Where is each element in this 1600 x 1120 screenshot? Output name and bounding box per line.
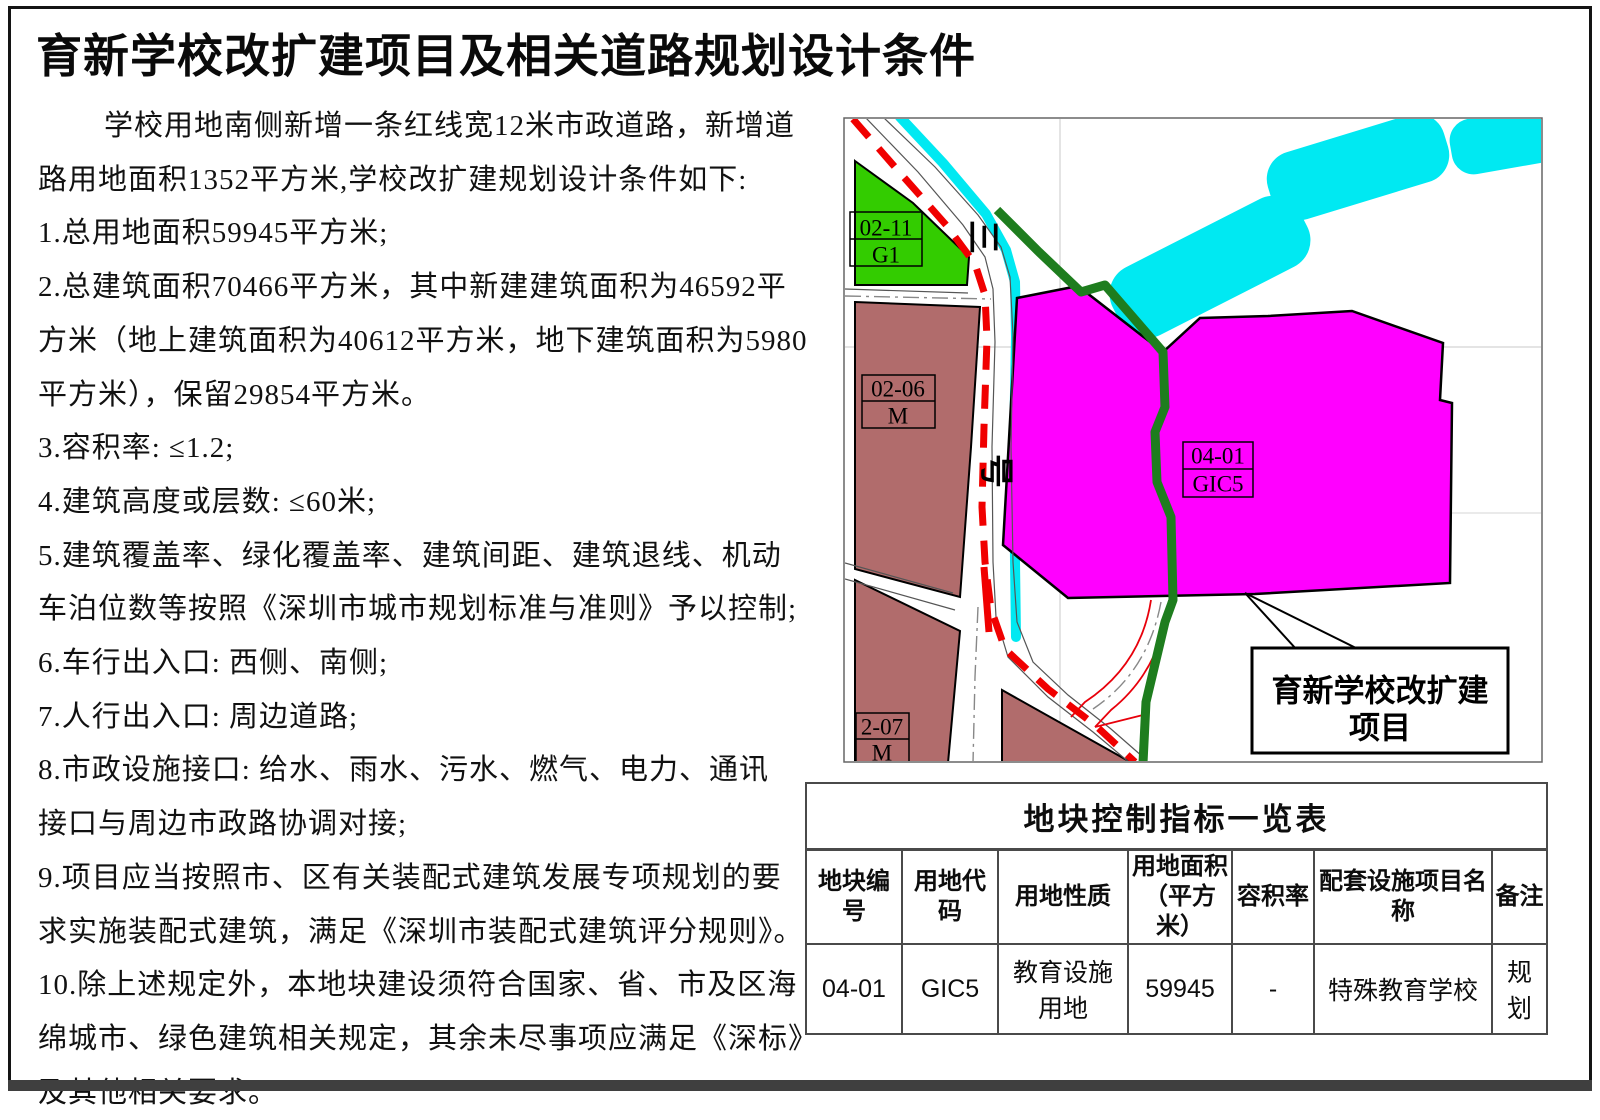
svg-text:04-01: 04-01 — [1191, 444, 1245, 469]
callout-line2: 项目 — [1349, 711, 1411, 746]
page-bottom-rule — [8, 1080, 1592, 1091]
text-line: 7.人行出入口: 周边道路; — [38, 691, 822, 745]
header-land-use: 用地性质 — [998, 850, 1128, 945]
text-line: 接口与周边市政路协调对接; — [38, 798, 822, 852]
svg-text:GIC5: GIC5 — [1192, 472, 1243, 497]
svg-text:02-06: 02-06 — [871, 377, 925, 402]
cell-land-code: GIC5 — [902, 944, 998, 1034]
design-conditions-text: 学校用地南侧新增一条红线宽12米市政道路，新增道 路用地面积1352平方米,学校… — [38, 100, 822, 1120]
text-line: 1.总用地面积59945平方米; — [38, 207, 822, 261]
text-line: 及其他相关要求。 — [38, 1067, 822, 1120]
cell-facility-name: 特殊教育学校 — [1314, 944, 1492, 1034]
text-line: 2.总建筑面积70466平方米，其中新建建筑面积为46592平 — [38, 261, 822, 315]
text-line: 6.车行出入口: 西侧、南侧; — [38, 637, 822, 691]
text-line: 9.项目应当按照市、区有关装配式建筑发展专项规划的要 — [38, 852, 822, 906]
planning-map: 三 号 02-11 G1 02-06 M 04-01 GIC5 2-07 — [843, 117, 1543, 763]
zone-label-0401: 04-01 GIC5 — [1183, 442, 1253, 497]
page-title: 育新学校改扩建项目及相关道路规划设计条件 — [36, 20, 1036, 86]
svg-text:02-11: 02-11 — [860, 216, 913, 241]
header-remarks: 备注 — [1492, 850, 1547, 945]
header-plot-number: 地块编号 — [806, 850, 902, 945]
svg-text:M: M — [872, 741, 892, 764]
road-name-char-bottom: 号 — [977, 454, 1014, 488]
svg-text:M: M — [888, 404, 908, 429]
text-line: 学校用地南侧新增一条红线宽12米市政道路，新增道 — [38, 100, 822, 154]
header-facility-name: 配套设施项目名称 — [1314, 850, 1492, 945]
header-plot-ratio: 容积率 — [1232, 850, 1314, 945]
industrial-zone-0206 — [855, 302, 980, 597]
text-line: 求实施装配式建筑，满足《深圳市装配式建筑评分规则》。 — [38, 906, 822, 960]
cell-land-area: 59945 — [1128, 944, 1232, 1034]
text-line: 路用地面积1352平方米,学校改扩建规划设计条件如下: — [38, 154, 822, 208]
text-line: 方米（地上建筑面积为40612平方米，地下建筑面积为5980 — [38, 315, 822, 369]
text-line: 8.市政设施接口: 给水、雨水、污水、燃气、电力、通讯 — [38, 744, 822, 798]
cell-plot-number: 04-01 — [806, 944, 902, 1034]
text-line: 3.容积率: ≤1.2; — [38, 422, 822, 476]
planned-road-red-solid-segment — [984, 567, 989, 632]
svg-text:2-07: 2-07 — [861, 715, 903, 740]
cell-land-use: 教育设施用地 — [998, 944, 1128, 1034]
cell-remarks: 规划 — [1492, 944, 1547, 1034]
cell-plot-ratio: - — [1232, 944, 1314, 1034]
text-line: 绵城市、绿色建筑相关规定，其余未尽事项应满足《深标》 — [38, 1013, 822, 1067]
text-line: 车泊位数等按照《深圳市城市规划标准与准则》予以控制; — [38, 583, 822, 637]
text-line: 4.建筑高度或层数: ≤60米; — [38, 476, 822, 530]
callout-line1: 育新学校改扩建 — [1272, 674, 1489, 709]
planning-map-svg: 三 号 02-11 G1 02-06 M 04-01 GIC5 2-07 — [843, 117, 1543, 763]
table-title: 地块控制指标一览表 — [806, 783, 1547, 850]
svg-text:G1: G1 — [872, 243, 900, 268]
table-header-row: 地块编号 用地代码 用地性质 用地面积 （平方米） 容积率 配套设施项目名称 备… — [806, 850, 1547, 945]
text-line: 平方米），保留29854平方米。 — [38, 369, 822, 423]
road-name-char-top: 三 — [964, 220, 1001, 254]
table-row: 04-01 GIC5 教育设施用地 59945 - 特殊教育学校 规划 — [806, 944, 1547, 1034]
header-land-code: 用地代码 — [902, 850, 998, 945]
plot-control-index-table: 地块控制指标一览表 地块编号 用地代码 用地性质 用地面积 （平方米） 容积率 … — [805, 782, 1548, 1035]
text-line: 10.除上述规定外，本地块建设须符合国家、省、市及区海 — [38, 959, 822, 1013]
text-line: 5.建筑覆盖率、绿化覆盖率、建筑间距、建筑退线、机动 — [38, 530, 822, 584]
header-land-area: 用地面积 （平方米） — [1128, 850, 1232, 945]
